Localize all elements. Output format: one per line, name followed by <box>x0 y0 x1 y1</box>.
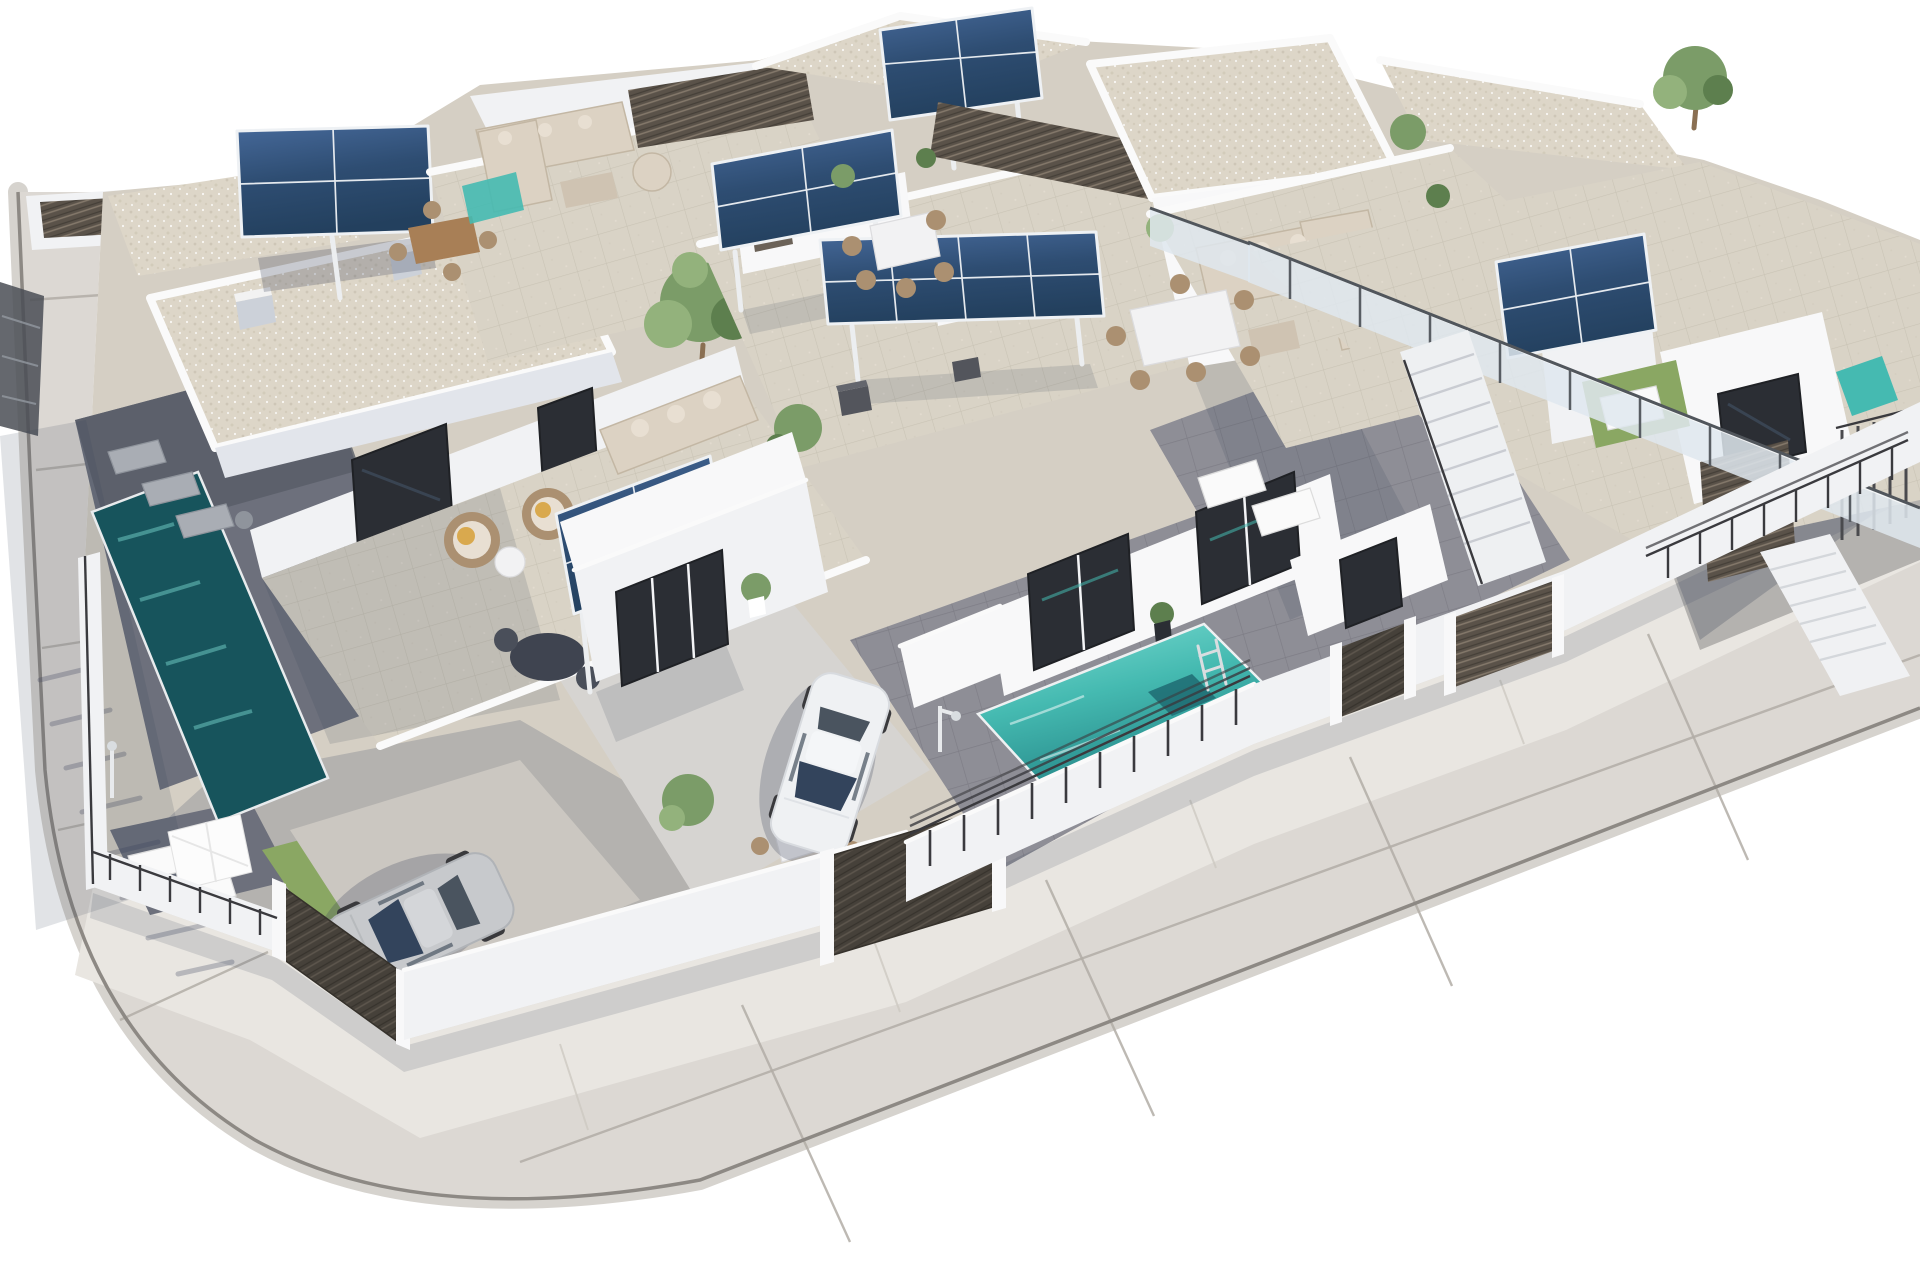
render-canvas: Aerial 3D architectural rendering of a m… <box>0 0 1920 1280</box>
villa-complex-render <box>0 0 1920 1280</box>
left-edge-balustrade <box>0 282 44 436</box>
palm-tree <box>1653 46 1733 128</box>
